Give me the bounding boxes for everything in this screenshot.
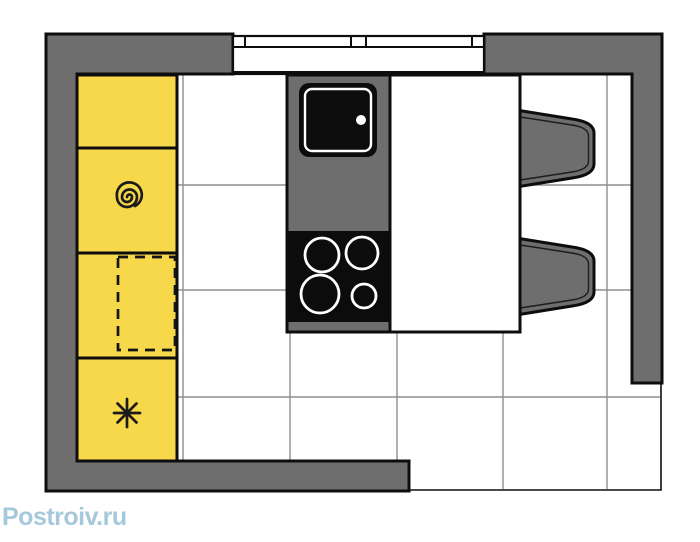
sink-drain-dot <box>356 115 366 125</box>
sink-icon <box>299 83 377 157</box>
chair-seat <box>516 110 594 187</box>
window <box>233 36 484 74</box>
chair-1 <box>516 110 594 187</box>
island <box>287 75 520 332</box>
cabinet-3 <box>77 253 177 358</box>
chair-2 <box>516 238 594 315</box>
watermark-text: Postroiv.ru <box>2 503 127 532</box>
cabinet-2 <box>77 148 177 253</box>
cooktop-icon <box>288 231 390 322</box>
window-frame <box>233 36 484 74</box>
cabinet-run <box>77 75 177 461</box>
chair-seat <box>516 238 594 315</box>
asterisk-icon <box>114 399 140 427</box>
cabinet-1 <box>77 75 177 148</box>
floor-plan-drawing <box>0 0 700 542</box>
kitchen-floor-plan: Postroiv.ru <box>0 0 700 542</box>
